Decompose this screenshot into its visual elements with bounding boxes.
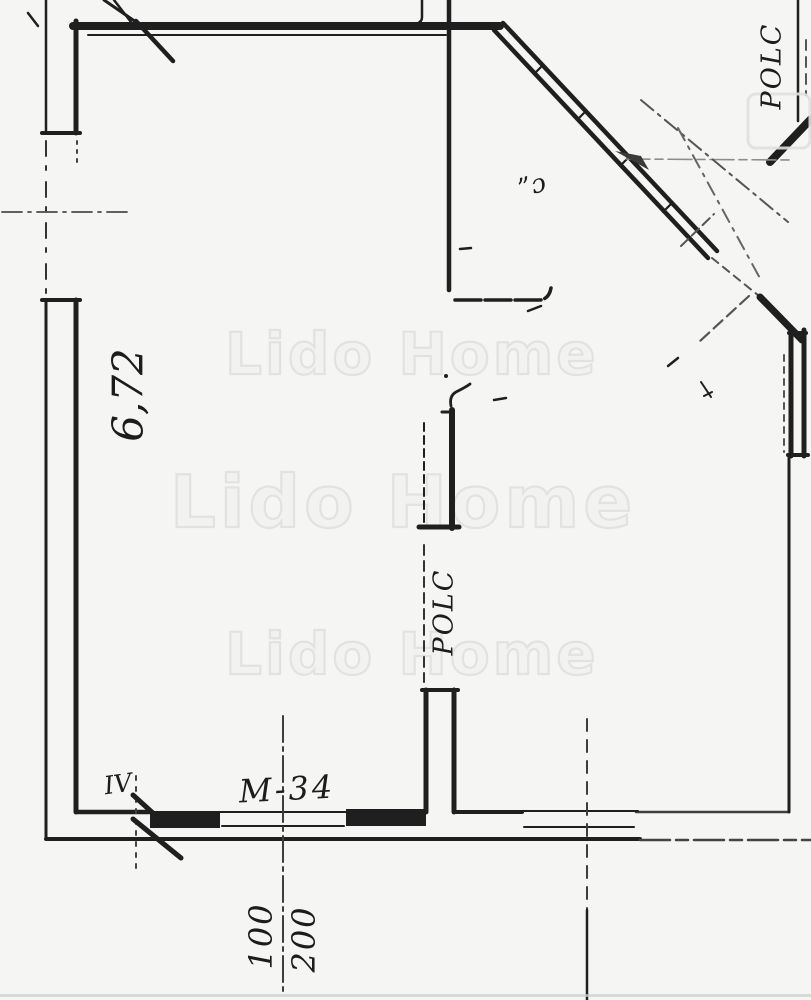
door-number-label: IV xyxy=(102,768,134,801)
scan-edge-artifact xyxy=(0,994,811,997)
floorplan-canvas: Lido Home Lido Home Lido Home xyxy=(0,0,811,1000)
shelf-label-upper: POLC xyxy=(757,23,788,110)
floorplan-linework xyxy=(0,0,811,1000)
scale-label: M-34 xyxy=(238,768,336,811)
window-dimension-left: 100 xyxy=(242,902,280,969)
room-area-label: 6,72 xyxy=(104,348,153,442)
window-dimension-right: 200 xyxy=(285,905,323,972)
shelf-label-lower: POLC xyxy=(429,569,460,656)
